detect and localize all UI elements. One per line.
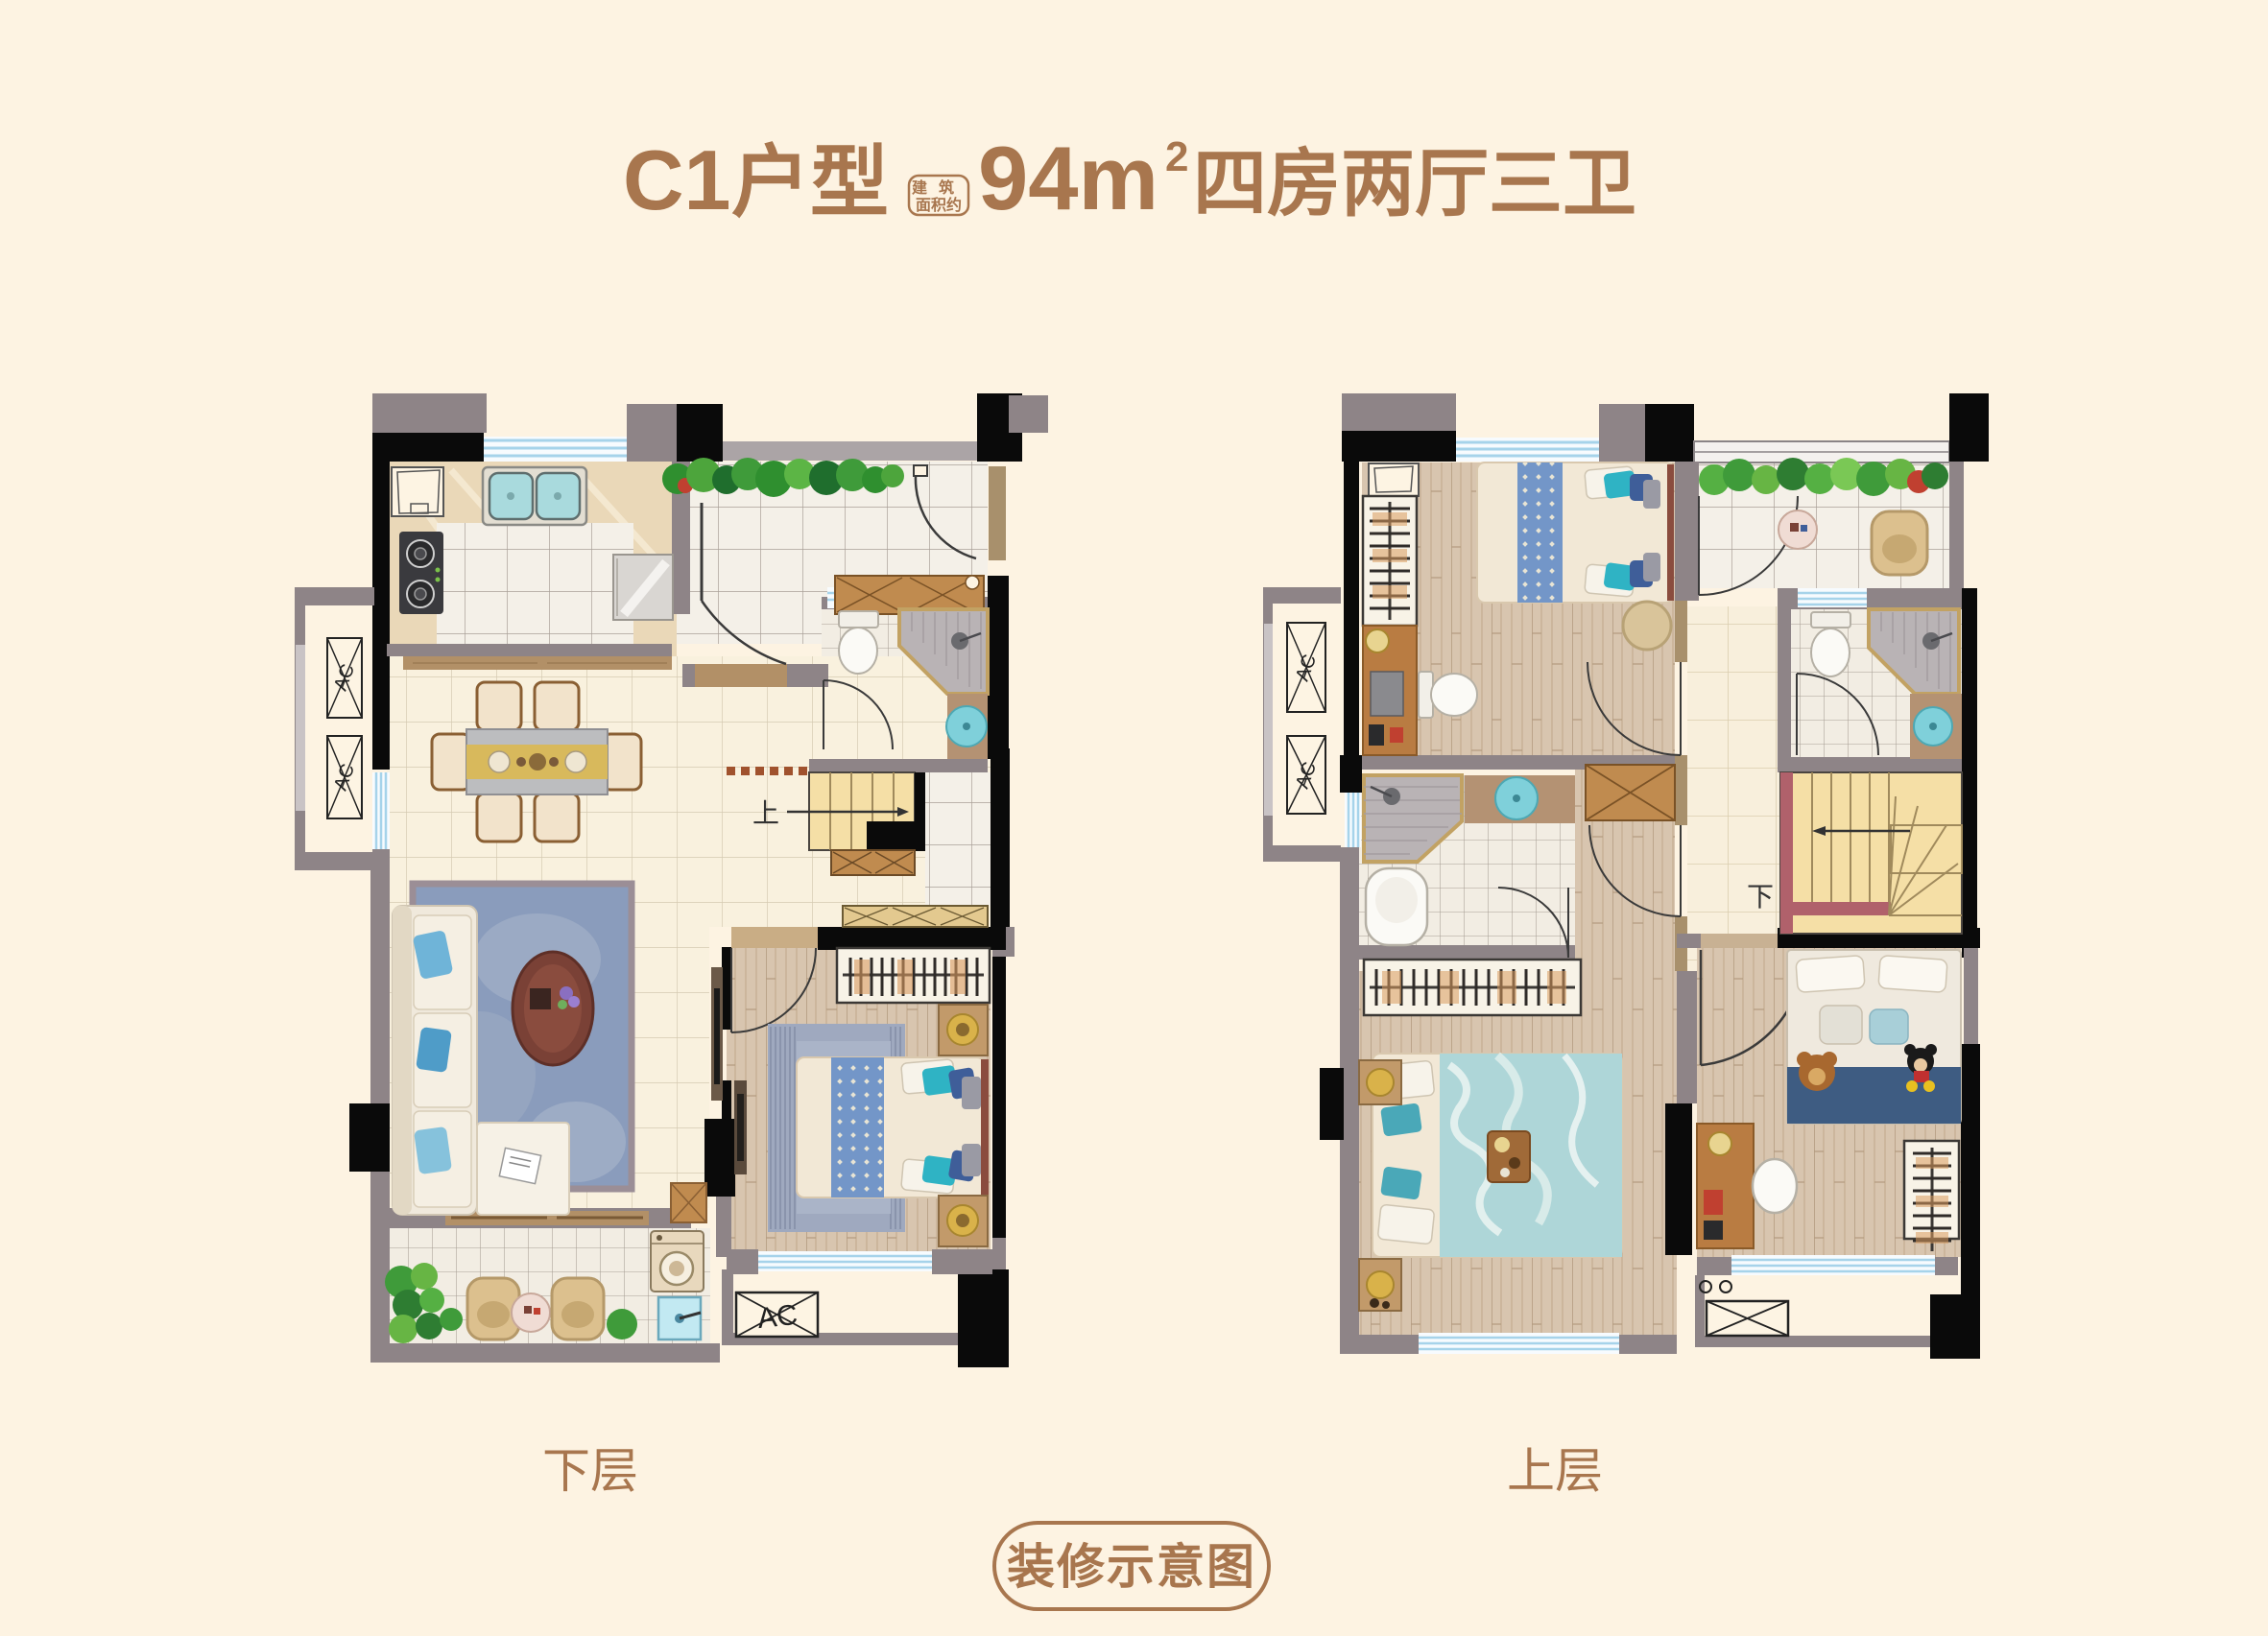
svg-text:AC: AC xyxy=(756,1299,800,1335)
svg-text:上层: 上层 xyxy=(1507,1444,1603,1498)
svg-text:C1: C1 xyxy=(623,132,731,227)
svg-text:建筑: 建筑 xyxy=(912,178,966,197)
svg-text:下层: 下层 xyxy=(542,1444,638,1498)
svg-text:四房两厅三卫: 四房两厅三卫 xyxy=(1193,143,1636,225)
svg-text:上: 上 xyxy=(752,798,779,828)
svg-text:2: 2 xyxy=(1165,133,1188,180)
svg-text:面积约: 面积约 xyxy=(916,196,962,214)
svg-text:户型: 户型 xyxy=(731,139,889,226)
svg-text:装修示意图: 装修示意图 xyxy=(1007,1540,1256,1594)
svg-text:94m: 94m xyxy=(978,128,1158,228)
svg-text:下: 下 xyxy=(1747,882,1774,912)
